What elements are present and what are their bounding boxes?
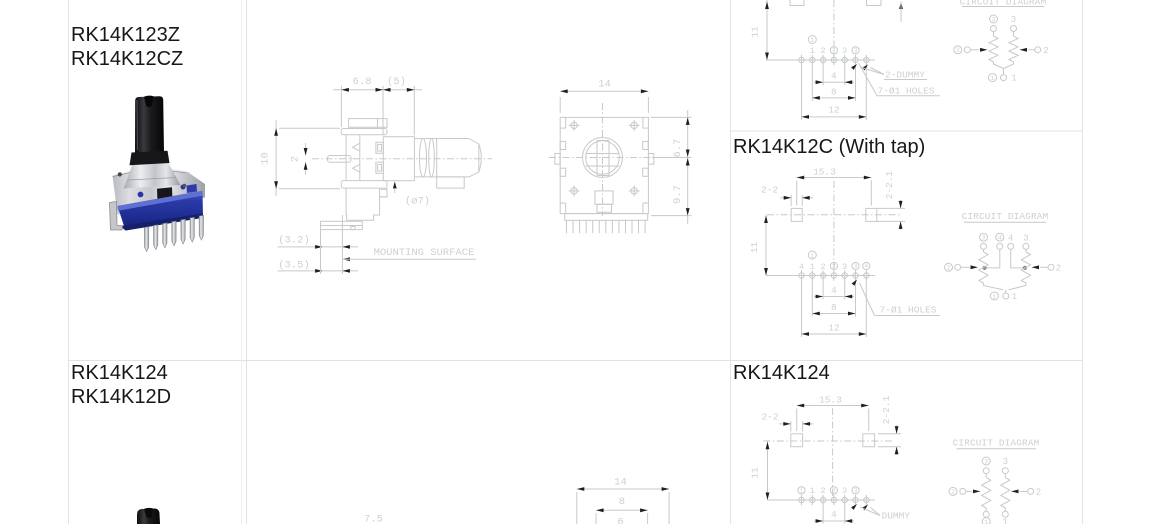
svg-text:6.8: 6.8	[353, 76, 372, 88]
svg-text:12: 12	[828, 323, 840, 334]
svg-text:3: 3	[842, 486, 847, 496]
svg-text:4: 4	[831, 509, 837, 520]
svg-text:8: 8	[831, 302, 837, 313]
svg-text:4: 4	[998, 235, 1002, 242]
svg-text:2: 2	[821, 46, 826, 56]
svg-text:1: 1	[1012, 292, 1017, 302]
svg-text:2-2.1: 2-2.1	[881, 395, 892, 424]
svg-text:2: 2	[832, 487, 836, 494]
svg-text:2: 2	[951, 489, 955, 496]
svg-text:1: 1	[810, 262, 815, 272]
svg-text:2: 2	[947, 265, 951, 272]
svg-text:4: 4	[799, 262, 804, 272]
svg-text:4: 4	[831, 285, 837, 296]
svg-text:9.7: 9.7	[672, 185, 684, 204]
svg-text:MOUNTING SURFACE: MOUNTING SURFACE	[374, 247, 475, 259]
svg-text:15.3: 15.3	[819, 395, 842, 406]
svg-text:3: 3	[842, 46, 847, 56]
svg-text:1: 1	[800, 487, 804, 494]
svg-text:14: 14	[598, 79, 611, 91]
svg-text:1: 1	[992, 293, 996, 300]
svg-text:3: 3	[1023, 233, 1028, 243]
svg-text:14: 14	[614, 477, 627, 489]
svg-text:2: 2	[1056, 264, 1061, 274]
svg-text:1: 1	[810, 37, 814, 44]
svg-text:4: 4	[1008, 233, 1013, 243]
svg-text:1: 1	[810, 486, 815, 496]
svg-text:8: 8	[619, 496, 625, 508]
svg-text:7-Ø1 HOLES: 7-Ø1 HOLES	[878, 86, 935, 97]
svg-text:2: 2	[821, 486, 826, 496]
svg-text:2: 2	[832, 263, 836, 270]
svg-text:6.7: 6.7	[672, 139, 684, 158]
svg-text:3: 3	[992, 16, 996, 23]
svg-text:1: 1	[1011, 74, 1016, 84]
svg-text:DUMMY: DUMMY	[882, 511, 911, 522]
svg-text:2: 2	[1043, 46, 1048, 56]
svg-text:1: 1	[984, 519, 988, 524]
svg-text:2-2: 2-2	[761, 412, 778, 423]
svg-text:CIRCUIT DIAGRAM: CIRCUIT DIAGRAM	[953, 437, 1040, 448]
svg-text:3: 3	[854, 263, 858, 270]
svg-text:2-2.1: 2-2.1	[884, 170, 895, 199]
svg-text:1: 1	[810, 46, 815, 56]
svg-text:1: 1	[810, 252, 814, 259]
svg-text:(ø7): (ø7)	[405, 196, 430, 208]
svg-text:1: 1	[991, 75, 995, 82]
svg-text:3: 3	[854, 47, 858, 54]
svg-text:3: 3	[982, 235, 986, 242]
svg-text:2-DUMMY: 2-DUMMY	[885, 70, 925, 81]
svg-text:2: 2	[290, 156, 302, 162]
svg-text:2-2: 2-2	[761, 185, 778, 196]
svg-text:15.3: 15.3	[813, 167, 836, 178]
svg-text:4: 4	[864, 263, 868, 270]
svg-text:1: 1	[1003, 518, 1008, 524]
svg-text:CIRCUIT DIAGRAM: CIRCUIT DIAGRAM	[962, 211, 1049, 222]
svg-text:11: 11	[750, 467, 761, 479]
svg-text:3: 3	[1011, 15, 1016, 25]
svg-text:11: 11	[750, 26, 761, 38]
svg-text:7-Ø1 HOLES: 7-Ø1 HOLES	[880, 305, 937, 316]
svg-text:2: 2	[956, 47, 960, 54]
svg-text:6: 6	[617, 517, 623, 524]
svg-text:3: 3	[854, 487, 858, 494]
svg-text:3: 3	[842, 262, 847, 272]
svg-text:3: 3	[1003, 457, 1008, 467]
svg-text:8: 8	[831, 87, 837, 98]
svg-text:2: 2	[832, 47, 836, 54]
svg-text:2: 2	[821, 262, 826, 272]
svg-text:(5): (5)	[387, 76, 406, 88]
svg-text:4: 4	[831, 71, 837, 82]
svg-text:(3.5): (3.5)	[278, 260, 310, 272]
svg-text:12: 12	[828, 105, 840, 116]
svg-text:10: 10	[260, 152, 272, 165]
svg-text:7.5: 7.5	[364, 514, 383, 524]
svg-text:3: 3	[984, 458, 988, 465]
svg-text:2: 2	[1036, 488, 1041, 498]
svg-text:11: 11	[749, 242, 760, 254]
svg-text:(3.2): (3.2)	[278, 235, 310, 247]
